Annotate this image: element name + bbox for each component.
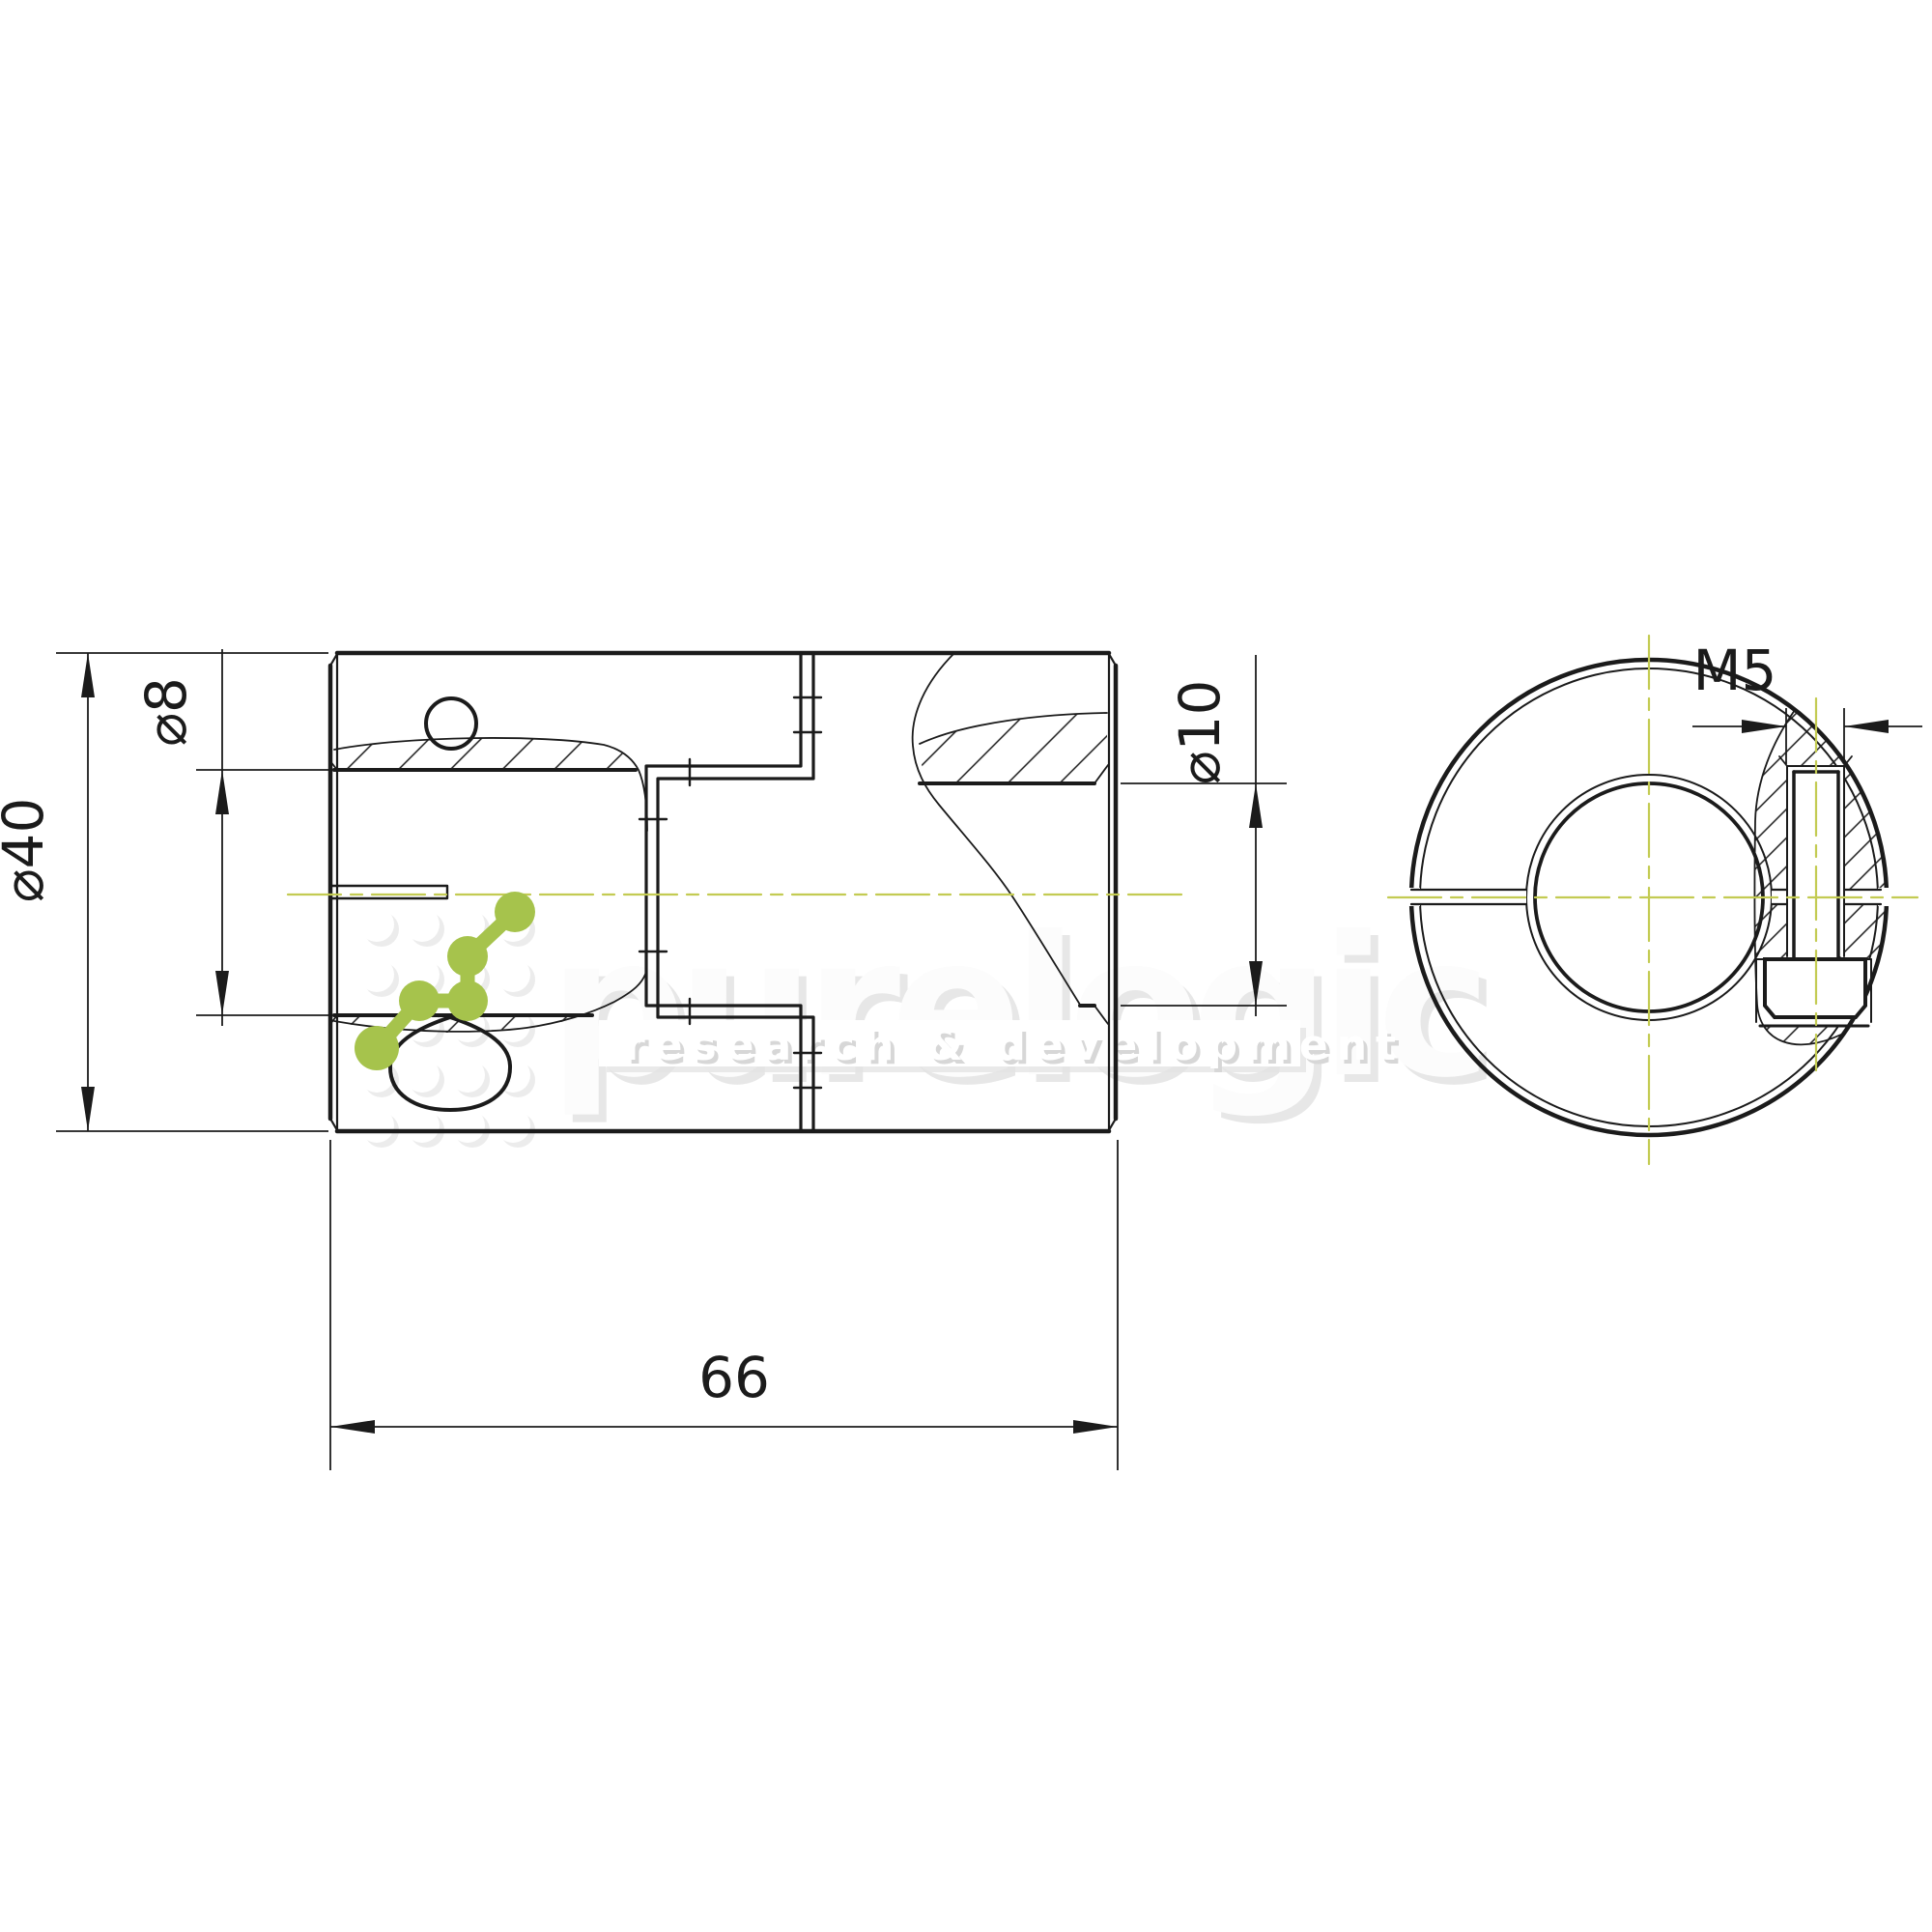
drawing-canvas: purelogic purelogic research & developme… (0, 0, 1932, 1932)
dim-overall-diameter-label: ⌀40 (0, 798, 56, 903)
dim-thread-label: M5 (1693, 638, 1777, 703)
dim-right-bore-label: ⌀10 (1167, 680, 1233, 785)
dim-length-label: 66 (698, 1345, 770, 1410)
dim-left-bore-label: ⌀8 (133, 677, 199, 747)
watermark-tagline: research & development (624, 1021, 1405, 1070)
